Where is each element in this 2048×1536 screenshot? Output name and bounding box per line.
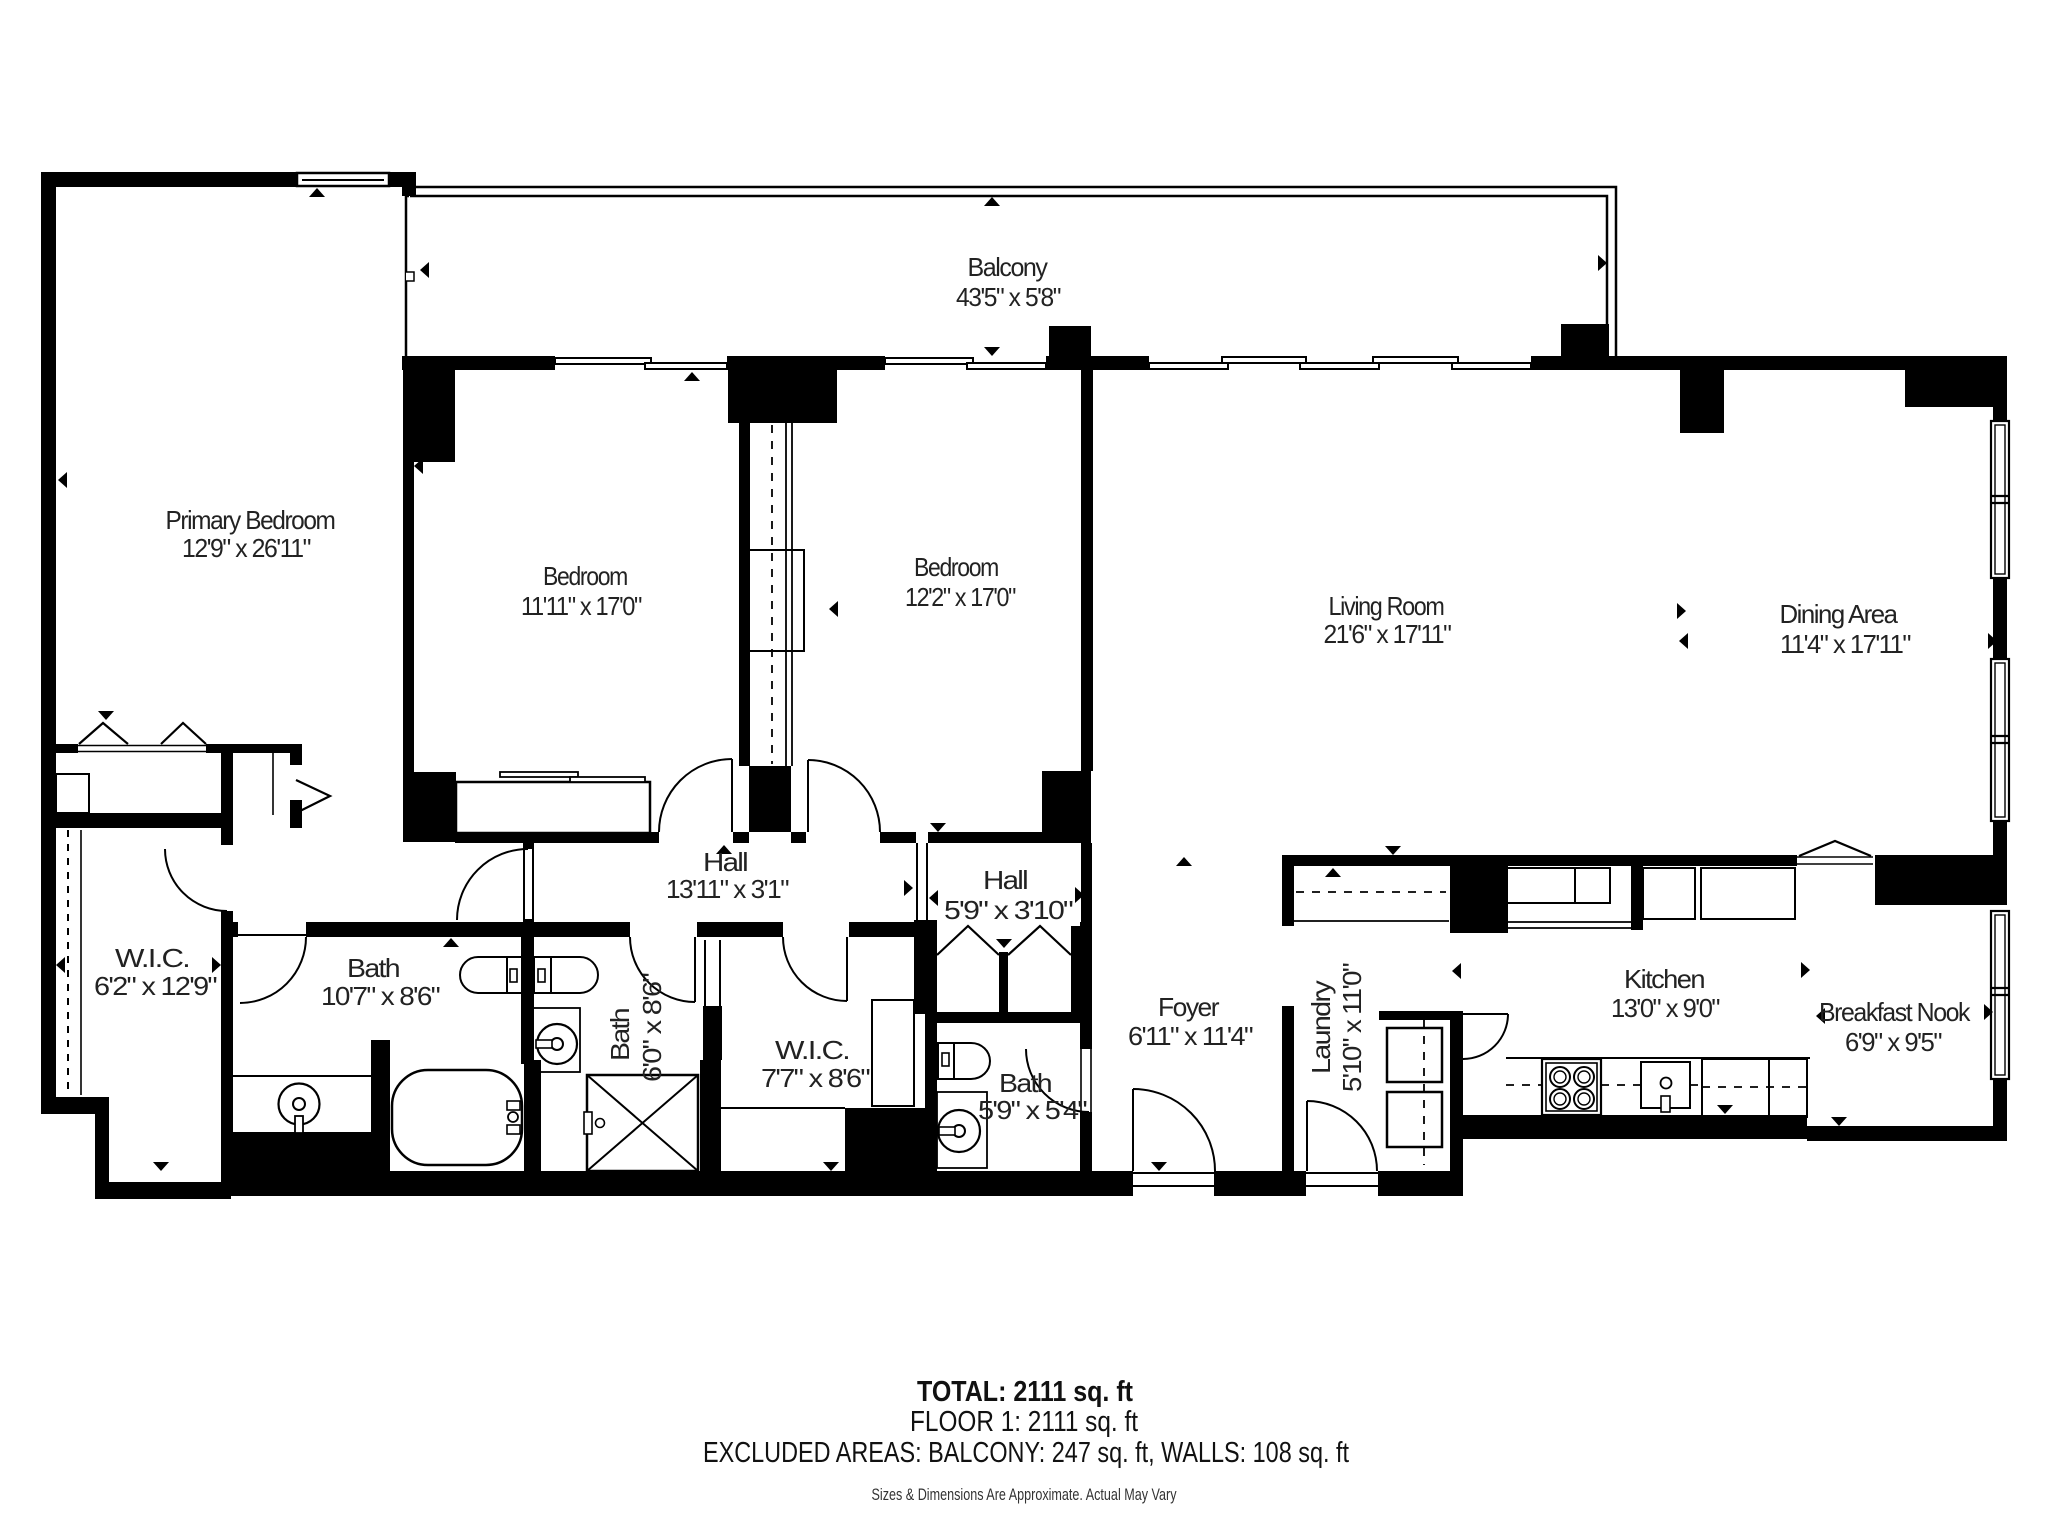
svg-text:Foyer: Foyer (1158, 992, 1220, 1022)
svg-text:21'6" x 17'11": 21'6" x 17'11" (1324, 619, 1452, 649)
svg-text:Bath: Bath (605, 1009, 635, 1061)
svg-text:11'4" x 17'11": 11'4" x 17'11" (1780, 629, 1911, 659)
svg-text:5'10" x 11'0": 5'10" x 11'0" (1337, 963, 1367, 1092)
svg-text:6'9" x 9'5": 6'9" x 9'5" (1845, 1027, 1942, 1057)
svg-text:11'11" x 17'0": 11'11" x 17'0" (521, 591, 642, 621)
svg-text:13'11" x 3'1": 13'11" x 3'1" (666, 874, 789, 904)
svg-text:10'7" x 8'6": 10'7" x 8'6" (321, 981, 440, 1011)
svg-text:12'2" x 17'0": 12'2" x 17'0" (905, 582, 1016, 612)
svg-text:6'11" x 11'4": 6'11" x 11'4" (1128, 1021, 1253, 1051)
svg-text:Living Room: Living Room (1329, 591, 1444, 621)
svg-text:Laundry: Laundry (1306, 980, 1336, 1074)
svg-text:TOTAL: 2111 sq. ft: TOTAL: 2111 sq. ft (917, 1376, 1133, 1408)
svg-text:W.I.C.: W.I.C. (115, 943, 189, 973)
svg-text:Kitchen: Kitchen (1624, 964, 1704, 994)
svg-text:Breakfast Nook: Breakfast Nook (1819, 997, 1971, 1027)
svg-text:Hall: Hall (703, 847, 748, 877)
svg-text:12'9" x 26'11": 12'9" x 26'11" (182, 533, 311, 563)
svg-text:Primary Bedroom: Primary Bedroom (166, 505, 335, 535)
svg-text:Hall: Hall (983, 865, 1028, 895)
svg-text:Sizes & Dimensions Are Approxi: Sizes & Dimensions Are Approximate. Actu… (872, 1485, 1177, 1504)
svg-text:Bedroom: Bedroom (543, 561, 627, 591)
svg-text:FLOOR 1: 2111 sq. ft: FLOOR 1: 2111 sq. ft (910, 1406, 1138, 1438)
svg-text:43'5" x 5'8": 43'5" x 5'8" (956, 282, 1061, 312)
svg-text:6'0" x 8'6": 6'0" x 8'6" (637, 973, 667, 1082)
svg-text:5'9" x 3'10": 5'9" x 3'10" (944, 895, 1073, 925)
svg-text:W.I.C.: W.I.C. (775, 1035, 849, 1065)
svg-text:EXCLUDED AREAS: BALCONY: 247 s: EXCLUDED AREAS: BALCONY: 247 sq. ft, WAL… (703, 1437, 1349, 1469)
svg-text:Bath: Bath (999, 1068, 1051, 1098)
svg-text:7'7" x 8'6": 7'7" x 8'6" (761, 1063, 870, 1093)
svg-text:Balcony: Balcony (968, 252, 1048, 282)
svg-text:Bath: Bath (347, 953, 399, 983)
svg-text:Dining Area: Dining Area (1780, 599, 1899, 629)
svg-text:5'9" x 5'4": 5'9" x 5'4" (978, 1095, 1087, 1125)
svg-text:Bedroom: Bedroom (914, 552, 998, 582)
svg-text:13'0" x 9'0": 13'0" x 9'0" (1611, 993, 1720, 1023)
svg-text:6'2" x 12'9": 6'2" x 12'9" (94, 971, 217, 1001)
